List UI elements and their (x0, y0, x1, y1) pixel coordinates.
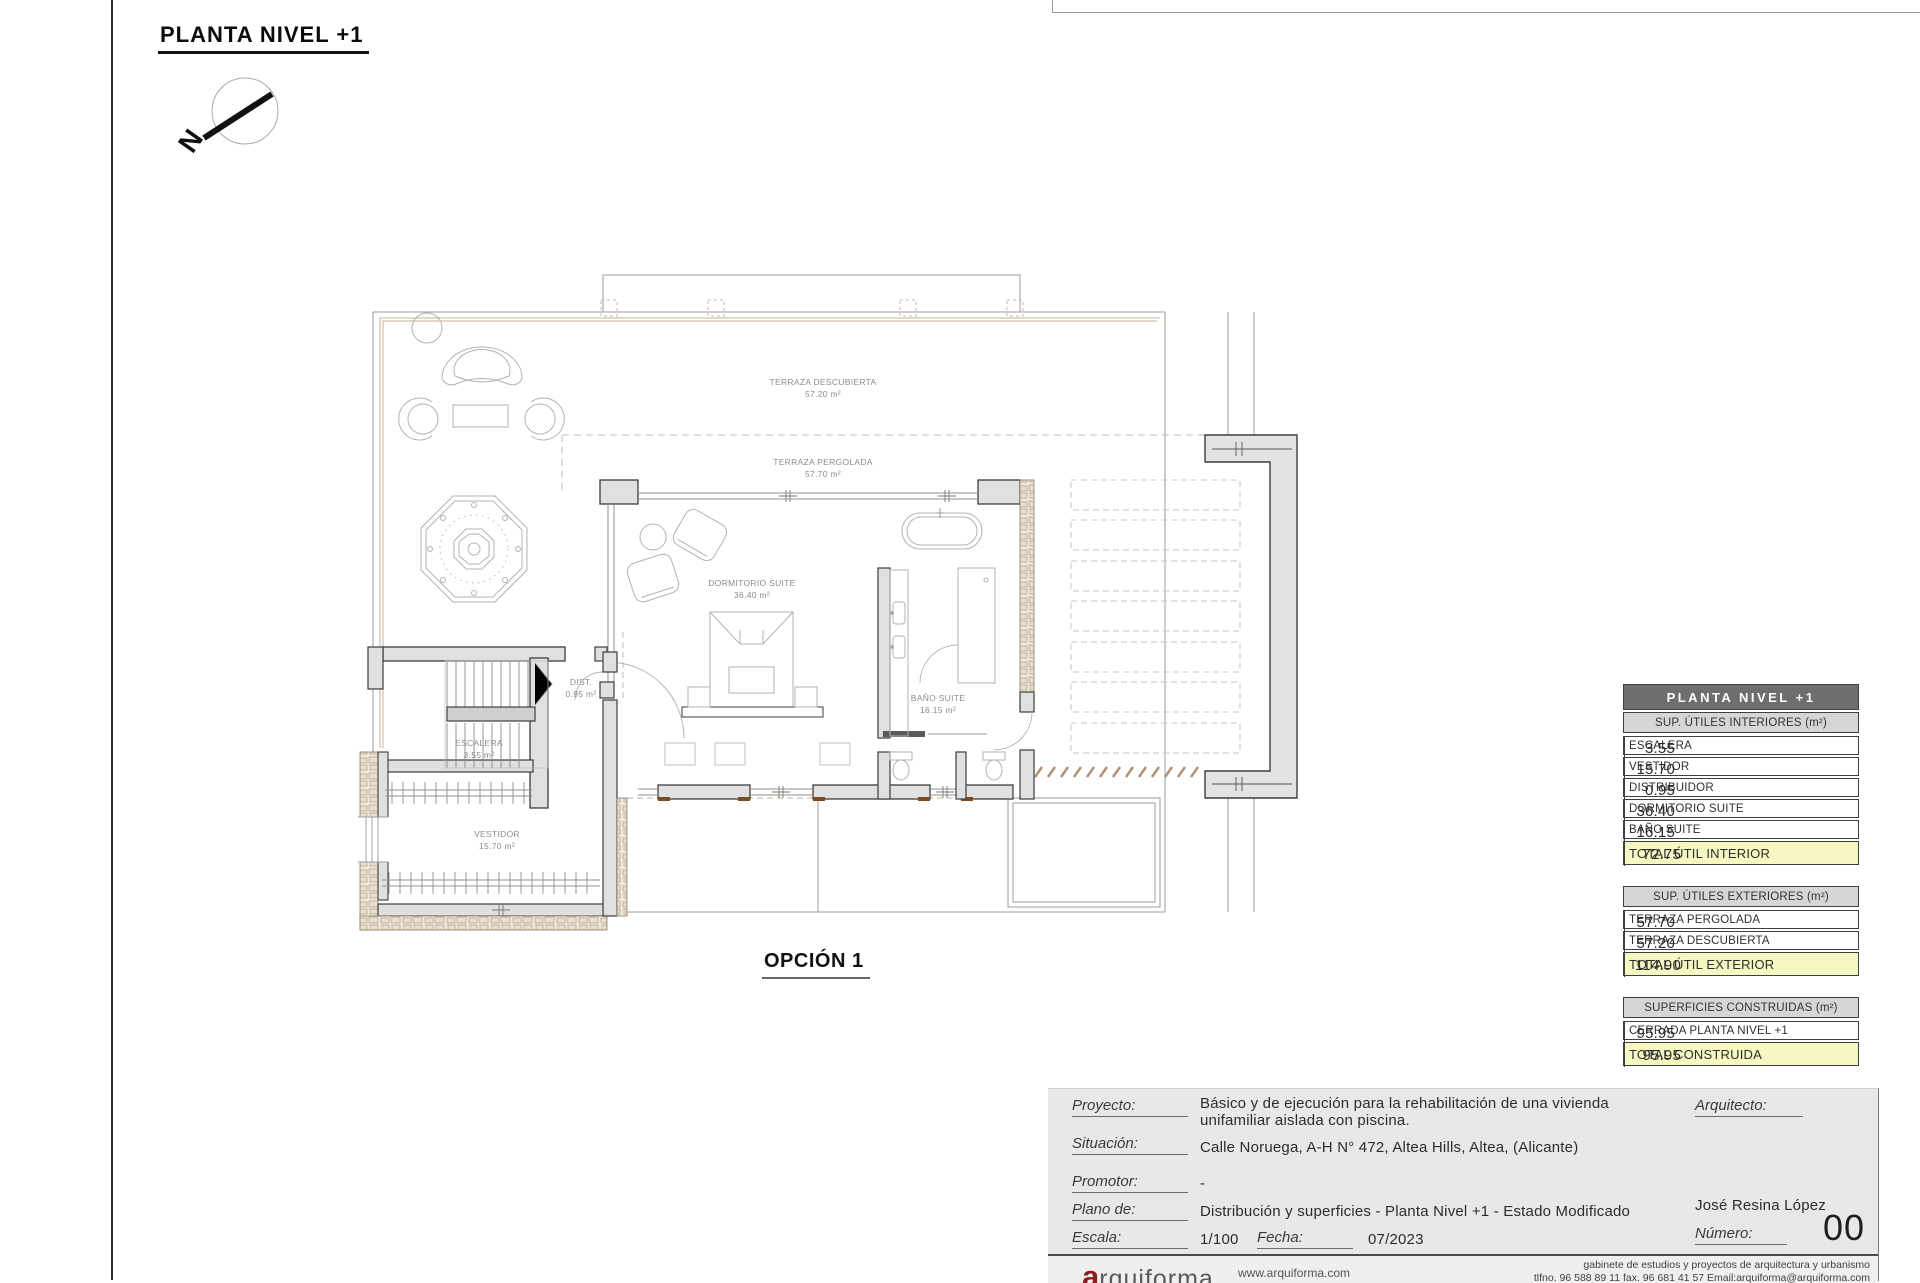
field-numero-label: Número: (1695, 1225, 1787, 1245)
table-subtitle: SUP. ÚTILES EXTERIORES (m²) (1623, 886, 1859, 907)
field-situacion-value: Calle Noruega, A-H N° 472, Altea Hills, … (1200, 1139, 1760, 1156)
label-dist: DIST. (570, 677, 592, 687)
title-block: Proyecto: Básico y de ejecución para la … (1048, 1088, 1879, 1281)
svg-text:15.70 m²: 15.70 m² (479, 841, 515, 851)
sheet-border-top-right (1052, 12, 1920, 13)
drawing-sheet: { "sheet": { "title": "PLANTA NIVEL +1",… (0, 0, 1920, 1280)
svg-text:16.15 m²: 16.15 m² (920, 705, 956, 715)
label-vestidor: VESTIDOR (474, 829, 520, 839)
svg-text:57.20 m²: 57.20 m² (805, 389, 841, 399)
slope-hatch (1022, 767, 1198, 777)
website-text: www.arquiforma.com (1238, 1266, 1350, 1280)
stair-block (368, 632, 623, 808)
field-promotor-value: - (1200, 1175, 1205, 1192)
table-row: TERRAZA PERGOLADA57.70 (1623, 910, 1859, 929)
right-wall-structure (1205, 435, 1297, 798)
table-subtitle: SUPERFICIES CONSTRUIDAS (m²) (1623, 997, 1859, 1018)
footer-strip: arquiforma www.arquiforma.com gabinete d… (1048, 1254, 1878, 1283)
sheet-border-top-right-tick (1052, 0, 1053, 13)
option-label: OPCIÓN 1 (762, 950, 870, 979)
terrace-inner-edge (380, 318, 1160, 798)
sheet-number: 00 (1823, 1207, 1865, 1249)
field-situacion-label: Situación: (1072, 1135, 1188, 1155)
field-promotor-label: Promotor: (1072, 1173, 1188, 1193)
field-arquitecto-label: Arquitecto: (1695, 1097, 1803, 1117)
label-bano-suite: BAÑO SUITE (911, 693, 966, 703)
field-plano-label: Plano de: (1072, 1201, 1188, 1221)
svg-text:0.95 m²: 0.95 m² (566, 689, 597, 699)
label-dormitorio-suite: DORMITORIO SUITE (708, 578, 795, 588)
table-row: CERRADA PLANTA NIVEL +195.95 (1623, 1021, 1859, 1040)
table-exterior-areas: SUP. ÚTILES EXTERIORES (m²) TERRAZA PERG… (1623, 886, 1859, 976)
field-plano-value: Distribución y superficies - Planta Nive… (1200, 1203, 1760, 1220)
field-proyecto-label: Proyecto: (1072, 1097, 1188, 1117)
contact-info: gabinete de estudios y proyectos de arqu… (1534, 1259, 1870, 1283)
table-total-row: TOTAL ÚTIL EXTERIOR114.90 (1623, 952, 1859, 976)
table-total-row: TOTAL ÚTIL INTERIOR72.75 (1623, 841, 1859, 865)
arquiforma-logo: arquiforma (1082, 1259, 1214, 1283)
table-row: DISTRIBUIDOR0.95 (1623, 778, 1859, 797)
suite-furniture (625, 506, 1005, 780)
north-arrow-icon: N (150, 58, 300, 173)
area-tables: PLANTA NIVEL +1 SUP. ÚTILES INTERIORES (… (1623, 684, 1859, 1087)
pergola-dashed-boundary (562, 300, 1205, 490)
terrace-furniture (399, 313, 565, 602)
field-fecha-value: 07/2023 (1368, 1231, 1424, 1248)
svg-text:57.70 m²: 57.70 m² (805, 469, 841, 479)
table-row: ESCALERA3.55 (1623, 736, 1859, 755)
label-terraza-pergolada: TERRAZA PERGOLADA (773, 457, 873, 467)
field-proyecto-value: Básico y de ejecución para la rehabilita… (1200, 1095, 1720, 1129)
north-letter: N (172, 124, 209, 158)
svg-text:3.55 m²: 3.55 m² (464, 750, 495, 760)
table-title: PLANTA NIVEL +1 (1623, 684, 1859, 710)
label-terraza-descubierta: TERRAZA DESCUBIERTA (770, 377, 877, 387)
pergola-slats (1071, 480, 1240, 753)
table-built-areas: SUPERFICIES CONSTRUIDAS (m²) CERRADA PLA… (1623, 997, 1859, 1066)
page-title: PLANTA NIVEL +1 (158, 22, 369, 54)
table-row: TERRAZA DESCUBIERTA57.20 (1623, 931, 1859, 950)
label-escalera: ESCALERA (455, 738, 503, 748)
table-row: DORMITORIO SUITE36.40 (1623, 799, 1859, 818)
field-escala-value: 1/100 (1200, 1231, 1239, 1248)
toilet-icon (890, 752, 1005, 780)
svg-text:36.40 m²: 36.40 m² (734, 590, 770, 600)
bed-icon (682, 612, 823, 717)
table-row: BAÑO SUITE16.15 (1623, 820, 1859, 839)
sheet-border-left (111, 0, 113, 1280)
table-row: VESTIDOR15.70 (1623, 757, 1859, 776)
field-escala-label: Escala: (1072, 1229, 1188, 1249)
field-fecha-label: Fecha: (1257, 1229, 1353, 1249)
table-total-row: TOTAL CONSTRUIDA95.95 (1623, 1042, 1859, 1066)
floor-plan: TERRAZA DESCUBIERTA 57.20 m² TERRAZA PER… (292, 212, 1302, 952)
table-subtitle: SUP. ÚTILES INTERIORES (m²) (1623, 712, 1859, 733)
table-interior-areas: PLANTA NIVEL +1 SUP. ÚTILES INTERIORES (… (1623, 684, 1859, 865)
jacuzzi-icon (421, 496, 527, 602)
terrace-boundary (373, 275, 1254, 912)
architect-name: José Resina López (1695, 1197, 1826, 1214)
